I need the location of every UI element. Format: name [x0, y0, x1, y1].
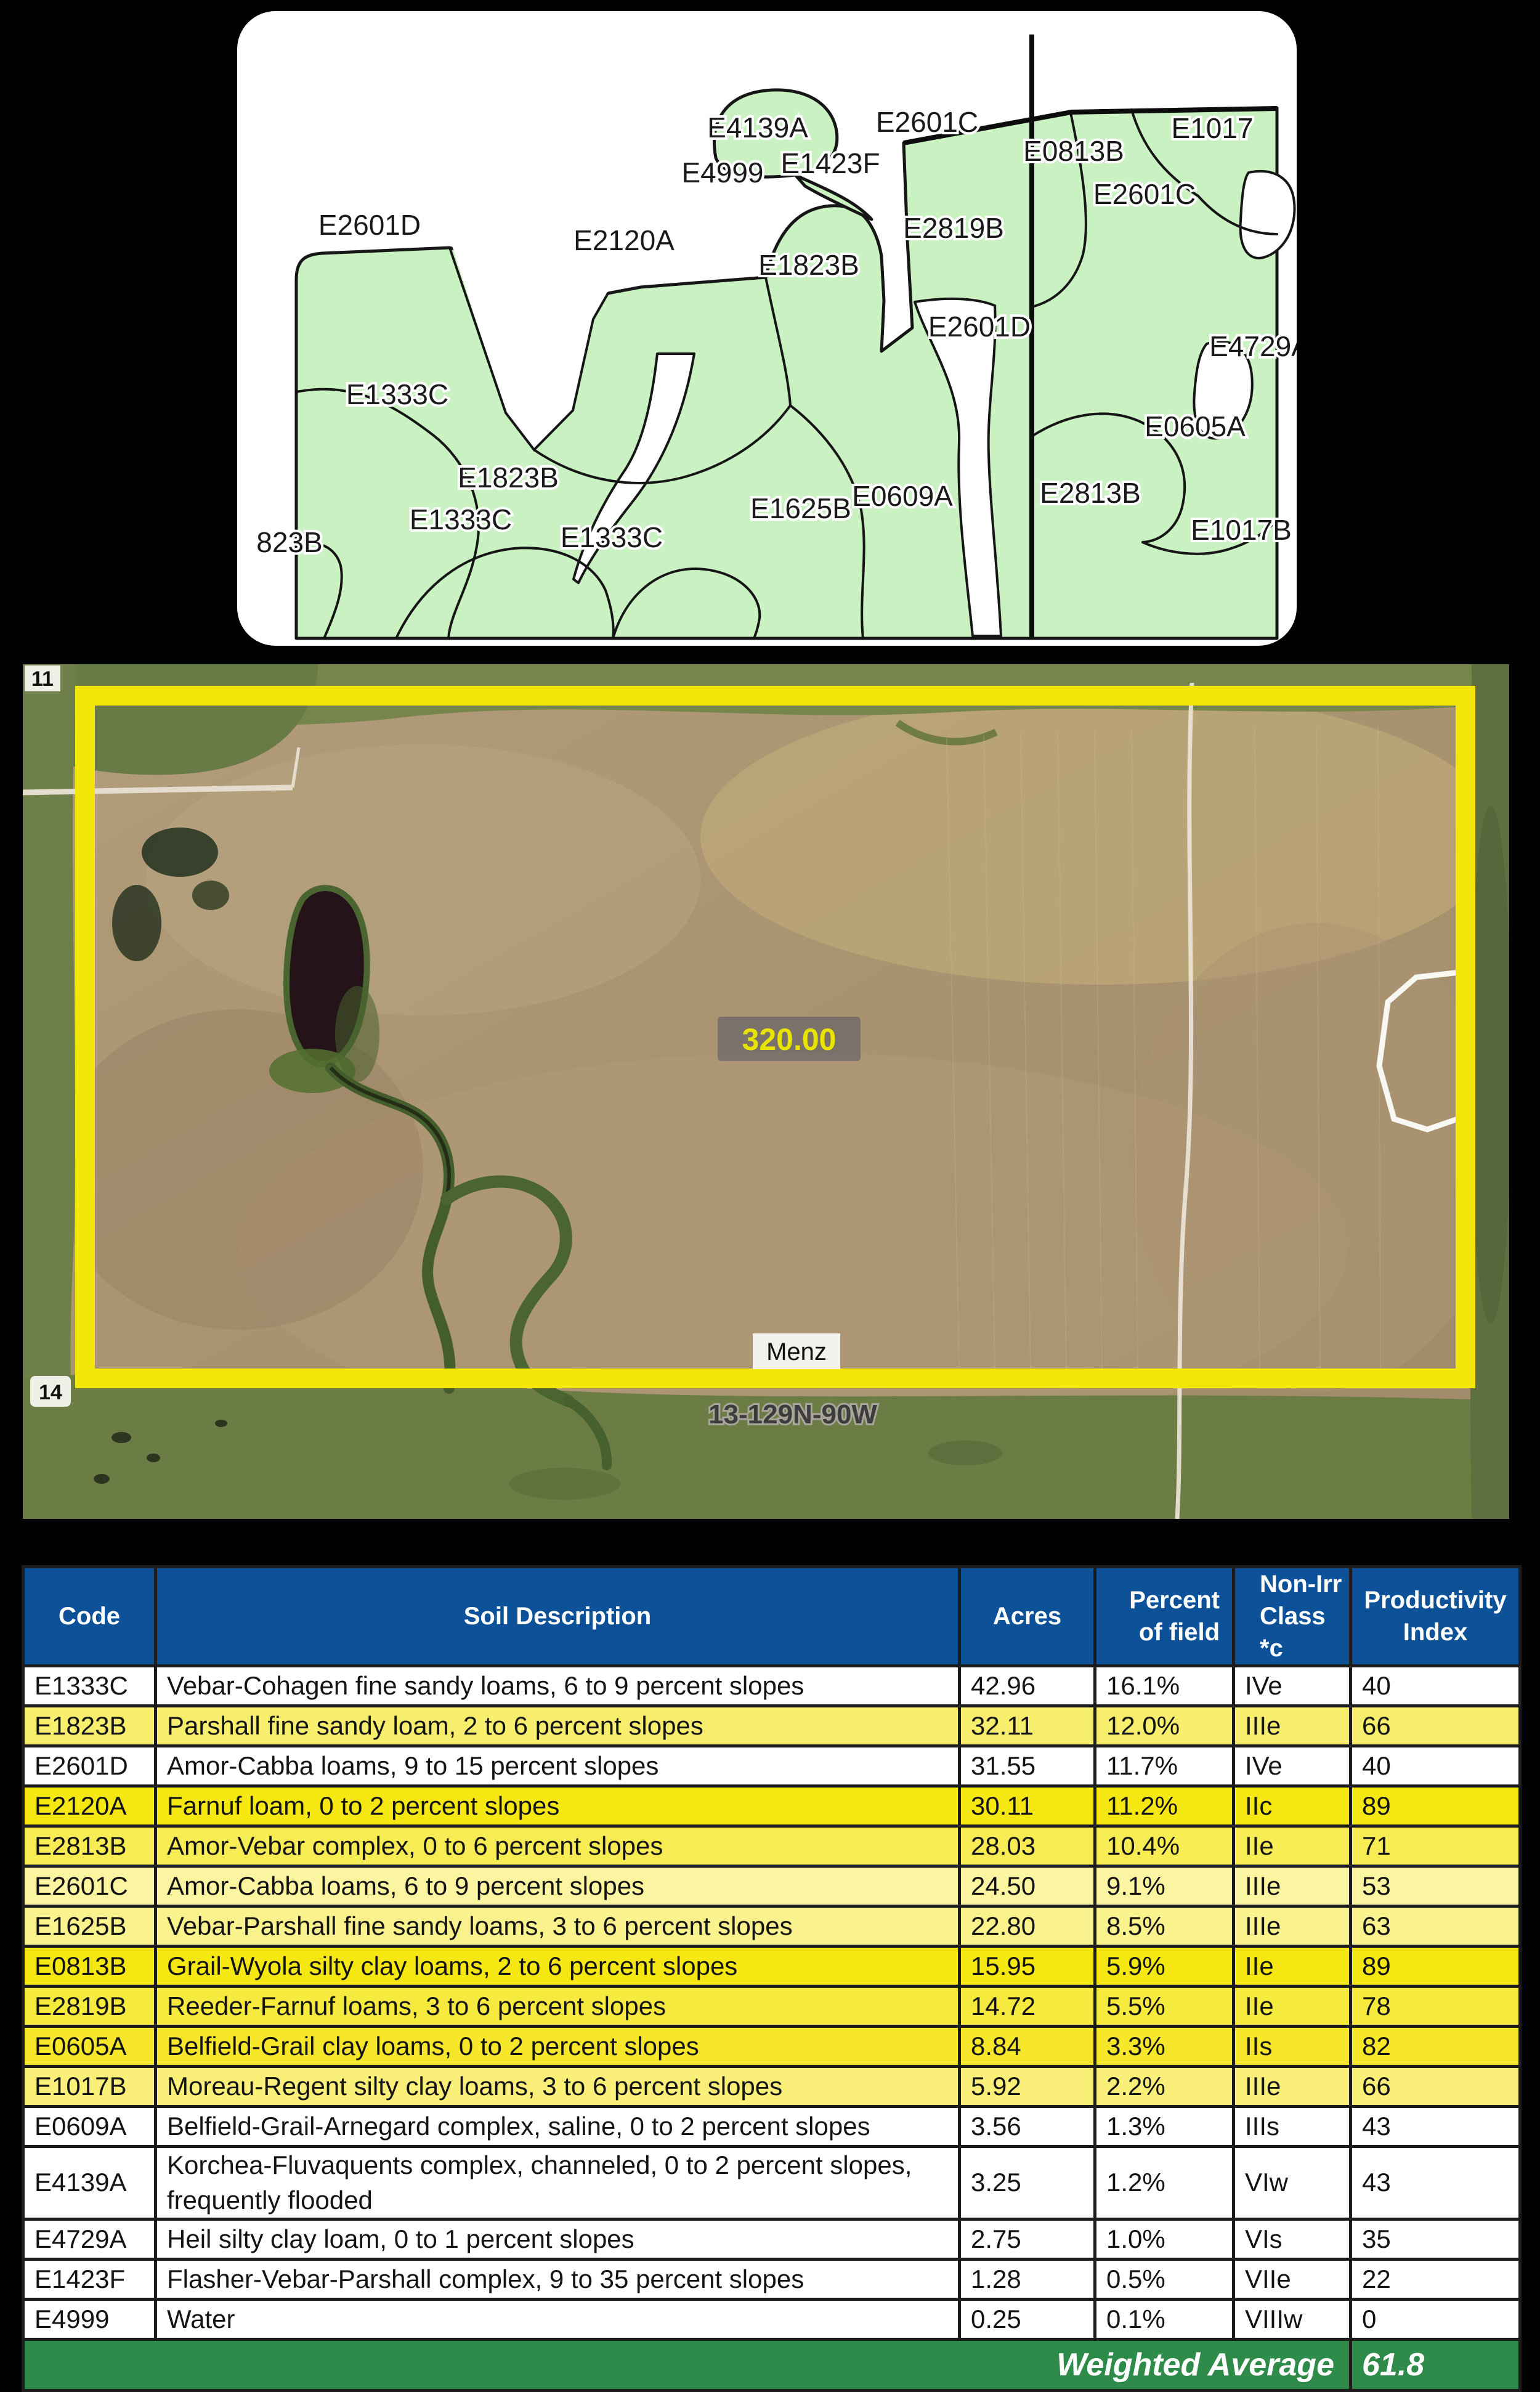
cell-prod_index: 43 [1351, 2147, 1520, 2219]
soil-polygon-label: E2601D [928, 311, 1031, 343]
soil-row: E2819BReeder-Farnuf loams, 3 to 6 percen… [23, 1987, 1520, 2027]
cell-percent: 1.2% [1095, 2147, 1234, 2219]
soil-row: E4139AKorchea-Fluvaquents complex, chann… [23, 2147, 1520, 2219]
cell-code: E2819B [23, 1987, 156, 2027]
cell-nonirr_class: VIIe [1234, 2260, 1351, 2300]
soil-polygon-label: E0813B [1023, 135, 1124, 167]
cell-prod_index: 0 [1351, 2300, 1520, 2340]
soil-polygon-label: E1625B [750, 492, 851, 524]
cell-nonirr_class: IIIs [1234, 2107, 1351, 2147]
cell-description: Vebar-Cohagen fine sandy loams, 6 to 9 p… [156, 1666, 960, 1706]
soil-polygon-label: E2601C [1093, 178, 1196, 210]
cell-code: E1823B [23, 1706, 156, 1746]
cell-percent: 1.3% [1095, 2107, 1234, 2147]
soil-row: E2601DAmor-Cabba loams, 9 to 15 percent … [23, 1746, 1520, 1786]
soil-row: E4999Water0.250.1%VIIIw0 [23, 2300, 1520, 2340]
cell-acres: 8.84 [960, 2027, 1095, 2067]
soil-map-card: E4139AE2601CE1017E0813BE4999E1423FE2601C… [237, 11, 1297, 646]
soil-row: E1017BMoreau-Regent silty clay loams, 3 … [23, 2067, 1520, 2107]
place-label: Menz [766, 1338, 827, 1365]
cell-percent: 11.7% [1095, 1746, 1234, 1786]
cell-code: E4139A [23, 2147, 156, 2219]
cell-percent: 0.5% [1095, 2260, 1234, 2300]
soil-polygon-label: E1333C [410, 503, 512, 535]
cell-nonirr_class: VIs [1234, 2219, 1351, 2260]
cell-acres: 14.72 [960, 1987, 1095, 2027]
cell-acres: 1.28 [960, 2260, 1095, 2300]
section-number-label: 14 [39, 1381, 62, 1404]
column-header: Acres [960, 1567, 1095, 1666]
acreage-label: 320.00 [742, 1022, 837, 1057]
column-header: Soil Description [156, 1567, 960, 1666]
cell-prod_index: 35 [1351, 2219, 1520, 2260]
cell-acres: 3.56 [960, 2107, 1095, 2147]
cell-prod_index: 63 [1351, 1906, 1520, 1947]
place-callout: Menz [753, 1333, 840, 1369]
cell-description: Parshall fine sandy loam, 2 to 6 percent… [156, 1706, 960, 1746]
cell-acres: 0.25 [960, 2300, 1095, 2340]
cell-nonirr_class: IIc [1234, 1786, 1351, 1826]
cell-nonirr_class: VIIIw [1234, 2300, 1351, 2340]
cell-nonirr_class: IIe [1234, 1987, 1351, 2027]
soil-polygon-label: E1017B [1191, 514, 1292, 546]
cell-description: Belfield-Grail clay loams, 0 to 2 percen… [156, 2027, 960, 2067]
cell-code: E0813B [23, 1947, 156, 1987]
cell-code: E4999 [23, 2300, 156, 2340]
soil-polygon-label: E1823B [458, 462, 559, 494]
cell-description: Amor-Cabba loams, 6 to 9 percent slopes [156, 1866, 960, 1906]
soil-polygon-label: E2120A [573, 224, 675, 256]
cell-description: Moreau-Regent silty clay loams, 3 to 6 p… [156, 2067, 960, 2107]
cell-prod_index: 22 [1351, 2260, 1520, 2300]
cell-nonirr_class: IIIe [1234, 1706, 1351, 1746]
cell-nonirr_class: IIIe [1234, 1866, 1351, 1906]
soil-row: E4729AHeil silty clay loam, 0 to 1 perce… [23, 2219, 1520, 2260]
acreage-callout: 320.00 [718, 1017, 861, 1061]
cell-acres: 24.50 [960, 1866, 1095, 1906]
cell-nonirr_class: IIs [1234, 2027, 1351, 2067]
cell-description: Farnuf loam, 0 to 2 percent slopes [156, 1786, 960, 1826]
soil-polygon-label: E2601D [318, 209, 421, 241]
soil-row: E2813BAmor-Vebar complex, 0 to 6 percent… [23, 1826, 1520, 1866]
column-header: Non-IrrClass *c [1234, 1567, 1351, 1666]
cell-code: E2601D [23, 1746, 156, 1786]
cell-acres: 15.95 [960, 1947, 1095, 1987]
cell-prod_index: 89 [1351, 1947, 1520, 1987]
cell-prod_index: 78 [1351, 1987, 1520, 2027]
cell-description: Vebar-Parshall fine sandy loams, 3 to 6 … [156, 1906, 960, 1947]
cell-prod_index: 66 [1351, 2067, 1520, 2107]
cell-percent: 1.0% [1095, 2219, 1234, 2260]
column-header: Percentof field [1095, 1567, 1234, 1666]
soil-map: E4139AE2601CE1017E0813BE4999E1423FE2601C… [237, 11, 1297, 646]
cell-code: E4729A [23, 2219, 156, 2260]
cell-percent: 3.3% [1095, 2027, 1234, 2067]
section-number-14: 14 [30, 1376, 71, 1407]
cell-nonirr_class: IVe [1234, 1746, 1351, 1786]
cell-percent: 5.5% [1095, 1987, 1234, 2027]
soil-polygon-label: E2601C [876, 106, 978, 138]
soil-row: E1625BVebar-Parshall fine sandy loams, 3… [23, 1906, 1520, 1947]
soil-row: E0609ABelfield-Grail-Arnegard complex, s… [23, 2107, 1520, 2147]
cell-acres: 30.11 [960, 1786, 1095, 1826]
cell-code: E0609A [23, 2107, 156, 2147]
cell-description: Water [156, 2300, 960, 2340]
soil-table: CodeSoil DescriptionAcresPercentof field… [22, 1565, 1522, 2392]
cell-percent: 12.0% [1095, 1706, 1234, 1746]
weighted-average-row: Weighted Average 61.8 [23, 2340, 1520, 2391]
cell-prod_index: 89 [1351, 1786, 1520, 1826]
cell-code: E2120A [23, 1786, 156, 1826]
soil-polygon-label: E1423F [780, 147, 880, 179]
cell-code: E1625B [23, 1906, 156, 1947]
table-body: E1333CVebar-Cohagen fine sandy loams, 6 … [23, 1666, 1520, 2340]
cell-prod_index: 71 [1351, 1826, 1520, 1866]
cell-nonirr_class: IIIe [1234, 1906, 1351, 1947]
table-footer: Weighted Average 61.8 [23, 2340, 1520, 2391]
cell-acres: 3.25 [960, 2147, 1095, 2219]
soil-polygon-label: E2819B [903, 212, 1004, 244]
soil-report-page: { "page": {"background": "#000000"}, "so… [0, 0, 1540, 2388]
cell-prod_index: 43 [1351, 2107, 1520, 2147]
weighted-average-label: Weighted Average [23, 2340, 1351, 2391]
table-header: CodeSoil DescriptionAcresPercentof field… [23, 1567, 1520, 1666]
soil-polygon-label: E1333C [561, 521, 663, 553]
soil-row: E0605ABelfield-Grail clay loams, 0 to 2 … [23, 2027, 1520, 2067]
cell-nonirr_class: IIe [1234, 1947, 1351, 1987]
cell-description: Flasher-Vebar-Parshall complex, 9 to 35 … [156, 2260, 960, 2300]
cell-description: Amor-Cabba loams, 9 to 15 percent slopes [156, 1746, 960, 1786]
header-row: CodeSoil DescriptionAcresPercentof field… [23, 1567, 1520, 1666]
cell-nonirr_class: IIIe [1234, 2067, 1351, 2107]
cell-code: E2601C [23, 1866, 156, 1906]
cell-percent: 9.1% [1095, 1866, 1234, 1906]
column-header: ProductivityIndex [1351, 1567, 1520, 1666]
section-number-label: 11 [31, 667, 54, 691]
cell-percent: 11.2% [1095, 1786, 1234, 1826]
soil-polygon-label: E0609A [852, 480, 953, 512]
cell-percent: 5.9% [1095, 1947, 1234, 1987]
cell-acres: 28.03 [960, 1826, 1095, 1866]
cell-description: Heil silty clay loam, 0 to 1 percent slo… [156, 2219, 960, 2260]
cell-prod_index: 82 [1351, 2027, 1520, 2067]
cell-description: Korchea-Fluvaquents complex, channeled, … [156, 2147, 960, 2219]
cell-prod_index: 66 [1351, 1706, 1520, 1746]
cell-acres: 32.11 [960, 1706, 1095, 1746]
cell-percent: 10.4% [1095, 1826, 1234, 1866]
cell-code: E0605A [23, 2027, 156, 2067]
aerial-photo-panel: 11 14 320.00 Menz 13-129N-90W [23, 664, 1509, 1519]
cell-description: Grail-Wyola silty clay loams, 2 to 6 per… [156, 1947, 960, 1987]
soil-row: E1823BParshall fine sandy loam, 2 to 6 p… [23, 1706, 1520, 1746]
cell-percent: 8.5% [1095, 1906, 1234, 1947]
cell-prod_index: 40 [1351, 1666, 1520, 1706]
cell-code: E2813B [23, 1826, 156, 1866]
cell-acres: 2.75 [960, 2219, 1095, 2260]
cell-description: Amor-Vebar complex, 0 to 6 percent slope… [156, 1826, 960, 1866]
cell-code: E1423F [23, 2260, 156, 2300]
cell-acres: 42.96 [960, 1666, 1095, 1706]
township-range-label: 13-129N-90W [708, 1399, 877, 1430]
cell-percent: 2.2% [1095, 2067, 1234, 2107]
soil-polygon-label: E0605A [1145, 410, 1246, 442]
cell-acres: 31.55 [960, 1746, 1095, 1786]
cell-acres: 22.80 [960, 1906, 1095, 1947]
weighted-average-value: 61.8 [1351, 2340, 1520, 2391]
cell-description: Reeder-Farnuf loams, 3 to 6 percent slop… [156, 1987, 960, 2027]
soil-row: E1423FFlasher-Vebar-Parshall complex, 9 … [23, 2260, 1520, 2300]
cell-percent: 0.1% [1095, 2300, 1234, 2340]
soil-row: E2120AFarnuf loam, 0 to 2 percent slopes… [23, 1786, 1520, 1826]
soil-polygon-label: E4139A [707, 112, 808, 144]
cell-acres: 5.92 [960, 2067, 1095, 2107]
cell-nonirr_class: VIw [1234, 2147, 1351, 2219]
cell-code: E1017B [23, 2067, 156, 2107]
cell-prod_index: 40 [1351, 1746, 1520, 1786]
cell-prod_index: 53 [1351, 1866, 1520, 1906]
soil-polygon-label: E1823B [758, 249, 859, 281]
soil-row: E1333CVebar-Cohagen fine sandy loams, 6 … [23, 1666, 1520, 1706]
soil-polygon-label: E4729A [1209, 330, 1297, 362]
cell-description: Belfield-Grail-Arnegard complex, saline,… [156, 2107, 960, 2147]
cell-nonirr_class: IVe [1234, 1666, 1351, 1706]
soil-table-section: CodeSoil DescriptionAcresPercentof field… [22, 1565, 1518, 2392]
soil-polygon-label: E2813B [1040, 477, 1141, 509]
soil-polygon-label: E1333C [346, 378, 448, 410]
cell-code: E1333C [23, 1666, 156, 1706]
soil-polygon-label: 823B [256, 526, 322, 558]
cell-nonirr_class: IIe [1234, 1826, 1351, 1866]
column-header: Code [23, 1567, 156, 1666]
aerial-photo: 11 14 320.00 Menz 13-129N-90W [23, 664, 1509, 1519]
section-number-11: 11 [25, 665, 60, 691]
soil-row: E2601CAmor-Cabba loams, 6 to 9 percent s… [23, 1866, 1520, 1906]
cell-percent: 16.1% [1095, 1666, 1234, 1706]
soil-row: E0813BGrail-Wyola silty clay loams, 2 to… [23, 1947, 1520, 1987]
soil-polygon-label: E4999 [681, 157, 763, 189]
soil-polygon-label: E1017 [1171, 112, 1253, 144]
